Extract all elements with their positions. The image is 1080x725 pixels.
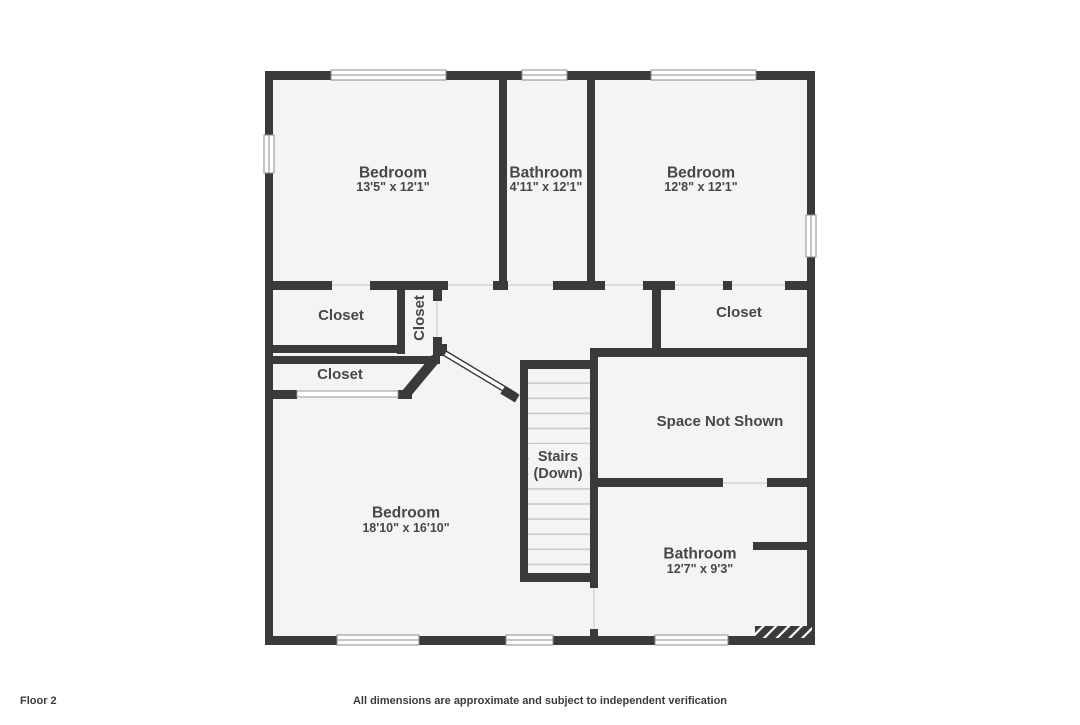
window xyxy=(337,635,419,645)
wall-stairs-left xyxy=(520,360,528,582)
wall-closet-right-left xyxy=(652,290,661,357)
disclaimer-text: All dimensions are approximate and subje… xyxy=(0,695,1080,707)
wall-hall-post xyxy=(723,281,732,290)
floorplan-canvas: Bedroom 13'5" x 12'1" Bathroom 4'11" x 1… xyxy=(0,0,1080,720)
wall-bathroom-top-left xyxy=(499,71,507,290)
window xyxy=(522,70,567,80)
room-label-bathroom-bottom: Bathroom xyxy=(663,546,736,563)
window xyxy=(506,635,553,645)
wall-stairs-right xyxy=(590,348,598,588)
wall-hall-seg xyxy=(643,281,675,290)
wall-closet-left-bottom xyxy=(265,345,405,353)
wall-hall-seg xyxy=(493,281,508,290)
wall-bathroom-door-stub xyxy=(590,629,598,637)
wall-hall-seg xyxy=(370,281,448,290)
wall-closet-lower-top xyxy=(265,356,440,364)
room-label-bathroom-top: Bathroom xyxy=(509,165,582,182)
wall-hall-seg xyxy=(553,281,605,290)
room-dims-bathroom-bottom: 12'7" x 9'3" xyxy=(667,562,734,576)
room-dims-bedroom-top-right: 12'8" x 12'1" xyxy=(664,180,737,194)
room-label-bedroom-top-left: Bedroom xyxy=(359,165,427,182)
wall-hall-seg xyxy=(785,281,815,290)
wall-outer-right xyxy=(807,71,815,645)
room-label-bedroom-top-right: Bedroom xyxy=(667,165,735,182)
wall-bathroom-top-right xyxy=(587,71,595,290)
wall-hall-seg xyxy=(265,281,332,290)
hatched-wall xyxy=(755,626,812,638)
room-label-stairs-line2: (Down) xyxy=(533,466,582,482)
wall-closet-lower-bottom xyxy=(265,390,297,399)
wall-stairs-bottom xyxy=(520,573,597,582)
floorplan: Bedroom 13'5" x 12'1" Bathroom 4'11" x 1… xyxy=(0,0,1080,720)
window xyxy=(651,70,756,80)
room-dims-bedroom-top-left: 13'5" x 12'1" xyxy=(356,180,429,194)
wall-bathroom-bottom-stub xyxy=(753,542,815,550)
window xyxy=(264,135,274,173)
room-dims-bathroom-top: 4'11" x 12'1" xyxy=(510,180,583,194)
wall-stairs-top xyxy=(520,360,597,369)
room-dims-bedroom-large: 18'10" x 16'10" xyxy=(362,521,449,535)
room-label-closet-right: Closet xyxy=(716,304,762,321)
room-label-closet-left: Closet xyxy=(318,307,364,324)
wall-sns-bottom-seg xyxy=(767,478,815,487)
window xyxy=(655,635,728,645)
closet-opening xyxy=(297,391,398,397)
wall-closet-hall-stub xyxy=(433,290,442,301)
wall-sns-top xyxy=(590,348,815,357)
window xyxy=(806,215,816,257)
room-label-bedroom-large: Bedroom xyxy=(372,505,440,522)
window xyxy=(331,70,446,80)
room-label-closet-lower-left: Closet xyxy=(317,366,363,383)
room-label-space-not-shown: Space Not Shown xyxy=(657,413,784,430)
wall-closet-left-divider xyxy=(397,290,405,354)
room-label-closet-hall: Closet xyxy=(411,295,428,341)
wall-sns-bottom-seg xyxy=(590,478,723,487)
room-label-stairs-line1: Stairs xyxy=(538,449,578,465)
